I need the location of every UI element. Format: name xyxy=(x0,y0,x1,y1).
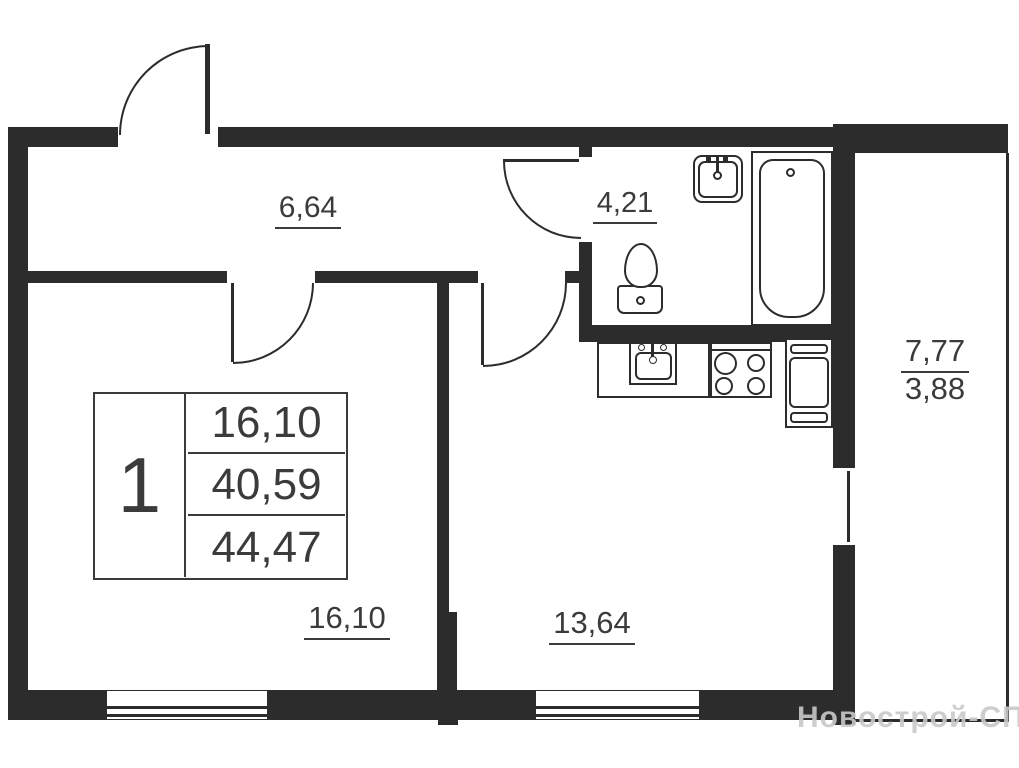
room-label-balcony-full: 7,77 xyxy=(885,333,985,373)
hallway-wall-right-stub xyxy=(565,271,579,283)
livingroom-door-leaf xyxy=(231,283,234,362)
area-table: 1 16,10 40,59 44,47 xyxy=(93,392,348,580)
kitchen-tap-right xyxy=(660,344,667,351)
bathroom-wall-left xyxy=(579,242,592,333)
kitchen-sink-drain xyxy=(649,356,657,364)
living-area-value: 16,10 xyxy=(211,398,321,448)
kitchen-tap-left xyxy=(638,344,645,351)
balcony-window xyxy=(836,468,853,545)
floor-plan: 1 16,10 40,59 44,47 6,64 4,21 16,10 13,6… xyxy=(0,0,1019,768)
stove-burner-4 xyxy=(747,377,765,395)
refrigerator-top-drawer xyxy=(790,344,828,354)
entrance-door-leaf xyxy=(205,44,210,134)
room-divider-wall-lower xyxy=(437,612,457,690)
bathroom-door-leaf xyxy=(503,159,579,162)
bathtub-drain xyxy=(786,168,795,177)
room-label-balcony-reduced: 3,88 xyxy=(885,371,985,407)
room-label-living-room: 16,10 xyxy=(297,600,397,640)
living-area-cell: 16,10 xyxy=(188,394,345,454)
livingroom-door-swing xyxy=(233,283,314,364)
balcony-outline-right xyxy=(1006,153,1009,722)
area-without-balcony-value: 40,59 xyxy=(211,460,321,510)
rooms-count-cell: 1 xyxy=(95,394,186,577)
outer-wall-top-main xyxy=(218,127,836,147)
window-kitchen xyxy=(536,691,699,719)
washbasin-tap-right xyxy=(723,156,728,162)
refrigerator-bottom-drawer xyxy=(790,412,828,423)
stove-panel-line xyxy=(712,349,770,351)
total-area-cell: 44,47 xyxy=(188,518,345,577)
bathroom-door-swing xyxy=(503,161,581,239)
room-label-hallway: 6,64 xyxy=(258,191,358,229)
hallway-wall-mid-segment xyxy=(315,271,478,283)
refrigerator-door xyxy=(789,357,829,408)
balcony-wall-top xyxy=(833,124,1008,153)
balcony-wall-right-lower xyxy=(833,545,855,725)
toilet-button xyxy=(636,296,645,305)
toilet-icon xyxy=(624,243,658,288)
rooms-count-value: 1 xyxy=(118,440,161,531)
washbasin-drain xyxy=(713,171,722,180)
bathroom-wall-left-top-stub xyxy=(579,147,592,157)
watermark: Новострой-СПб xyxy=(797,701,1019,735)
room-label-kitchen: 13,64 xyxy=(542,605,642,645)
stove-burner-2 xyxy=(747,354,765,372)
washbasin-tap-left xyxy=(706,156,711,162)
stove-burner-1 xyxy=(714,352,737,375)
room-label-bathroom: 4,21 xyxy=(575,187,675,224)
hallway-wall-left-segment xyxy=(28,271,227,283)
bathtub-basin xyxy=(759,159,825,318)
room-divider-wall-upper xyxy=(437,283,449,612)
window-living-room xyxy=(107,691,267,719)
area-without-balcony-cell: 40,59 xyxy=(188,457,345,516)
balcony-wall-right-upper xyxy=(833,124,855,468)
outer-wall-left xyxy=(8,127,28,720)
kitchen-door-leaf xyxy=(481,283,484,365)
total-area-value: 44,47 xyxy=(211,523,321,573)
entrance-door-swing xyxy=(119,45,209,135)
kitchen-door-swing xyxy=(483,283,567,367)
stove-burner-3 xyxy=(715,377,733,395)
outer-wall-bottom-stub xyxy=(438,720,458,725)
